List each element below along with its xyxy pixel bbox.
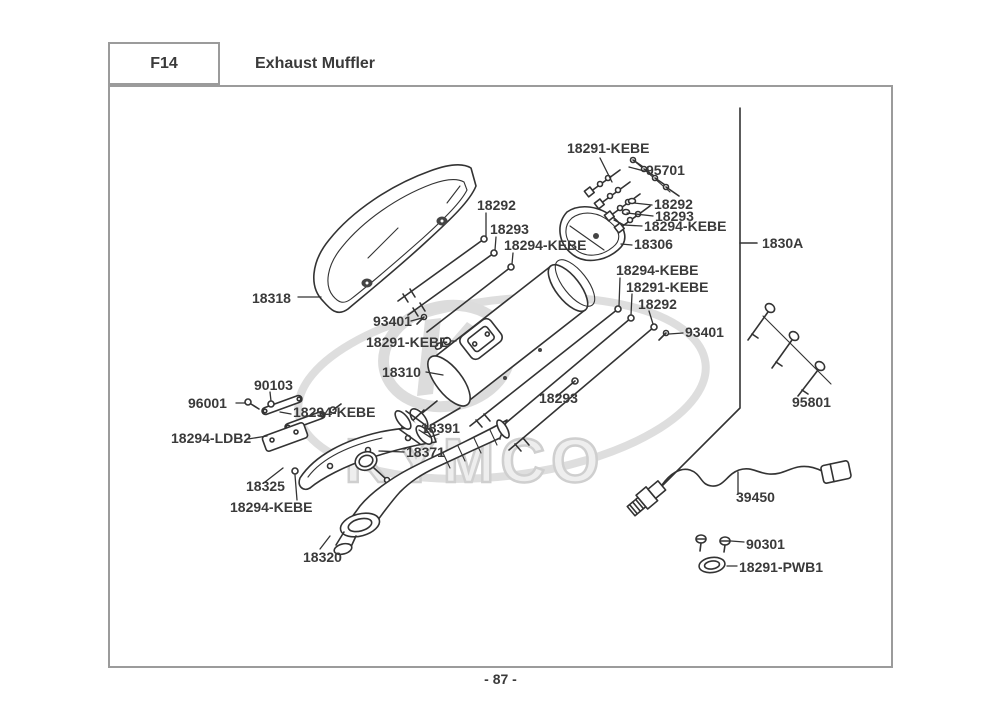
part-label-93401-left: 93401 bbox=[373, 313, 412, 329]
bolt-set-95801 bbox=[748, 302, 831, 396]
part-label-95801: 95801 bbox=[792, 394, 831, 410]
part-label-90103: 90103 bbox=[254, 377, 293, 393]
part-label-18306: 18306 bbox=[634, 236, 673, 252]
screw-set-90301 bbox=[696, 535, 730, 552]
part-label-18294-KEBE-topright: 18294-KEBE bbox=[644, 218, 727, 234]
part-label-18294-KEBE-right: 18294-KEBE bbox=[616, 262, 699, 278]
exploded-parts-diagram: KYMCO bbox=[0, 0, 1000, 707]
gasket-18291-PWB1 bbox=[698, 556, 726, 574]
part-label-39450: 39450 bbox=[736, 489, 775, 505]
part-label-18291-KEBE-top: 18291-KEBE bbox=[567, 140, 650, 156]
page-number: - 87 - bbox=[108, 671, 893, 687]
part-label-96001: 96001 bbox=[188, 395, 227, 411]
part-label-18294-KEBE-stay: 18294-KEBE bbox=[293, 404, 376, 420]
part-label-18318: 18318 bbox=[252, 290, 291, 306]
part-label-18291-KEBE-right: 18291-KEBE bbox=[626, 279, 709, 295]
part-label-18294-KEBE-pipe: 18294-KEBE bbox=[230, 499, 313, 515]
part-label-18294-LDB2: 18294-LDB2 bbox=[171, 430, 251, 446]
page-title: Exhaust Muffler bbox=[255, 55, 375, 73]
part-label-18292-right: 18292 bbox=[638, 296, 677, 312]
part-label-18292-left: 18292 bbox=[477, 197, 516, 213]
part-label-93401-right: 93401 bbox=[685, 324, 724, 340]
part-label-1830A: 1830A bbox=[762, 235, 803, 251]
section-code-box: F14 bbox=[108, 42, 220, 85]
heat-shield-18318 bbox=[314, 165, 476, 312]
part-label-18291-PWB1: 18291-PWB1 bbox=[739, 559, 823, 575]
manual-page: F14 Exhaust Muffler - 87 - KYMCO bbox=[0, 0, 1000, 707]
part-label-18320: 18320 bbox=[303, 549, 342, 565]
part-label-95701: 95701 bbox=[646, 162, 685, 178]
part-label-18310: 18310 bbox=[382, 364, 421, 380]
part-label-18371: 18371 bbox=[406, 444, 445, 460]
part-label-18293-bottom: 18293 bbox=[539, 390, 578, 406]
part-label-18294-KEBE-left: 18294-KEBE bbox=[504, 237, 587, 253]
section-code: F14 bbox=[150, 55, 178, 73]
part-label-18293-left: 18293 bbox=[490, 221, 529, 237]
part-label-18325: 18325 bbox=[246, 478, 285, 494]
part-label-18291-KEBE-mid: 18291-KEBE bbox=[366, 334, 449, 350]
part-label-18391: 18391 bbox=[421, 420, 460, 436]
part-label-90301: 90301 bbox=[746, 536, 785, 552]
